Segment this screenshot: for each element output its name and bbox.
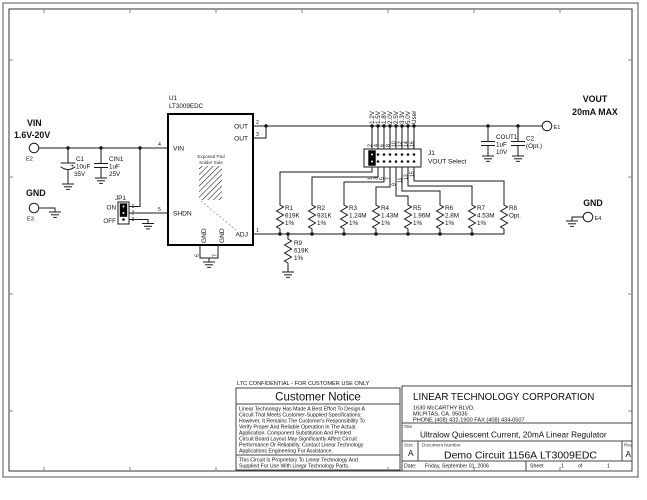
j1-option-user: User [411,111,418,124]
c1-value: 10uF [76,164,91,171]
terminal-e4 [583,212,593,222]
r3-value: 1.24M [349,213,367,220]
ground-symbol [142,220,154,229]
r8-value: Opt. [509,213,521,220]
r9-ref: R9 [294,240,303,247]
u1-pin-out1: OUT [234,124,248,131]
u1-pin-out2: OUT [234,136,248,143]
r4-value: 1.43M [381,213,399,220]
gnd-right-label: GND [583,198,603,208]
u1-num-out2: 3 [256,132,259,138]
u1-pin-vin: VIN [173,146,184,153]
sheet-of-label: of [578,464,583,470]
r2-tol: 1% [317,220,327,227]
pad-tie-dashed-line [201,201,236,230]
cin1-voltage: 25V [109,171,121,178]
resistor-bank: R1 619K 1% R2 931K 1% R3 1.24M 1% R4 1.4… [253,200,521,277]
size-label: Size [404,443,413,448]
r1-tol: 1% [285,220,295,227]
u1-num-vin: 4 [158,142,161,148]
doc-title: Ultralow Quiescent Current, 20mA Linear … [420,431,607,440]
r6-ref: R6 [445,205,454,212]
notice-footer-line: Supplied For Use With Linear Technology … [239,464,349,470]
u1-num-out1: 2 [256,120,259,126]
capacitor-c2: C2 (Opt.) [511,124,542,161]
ground-symbol [62,180,74,189]
date-label: Date: [404,464,416,470]
r3-ref: R3 [349,205,358,212]
capacitor-c1: C1 + 10uF 35V [61,148,91,189]
cin1-ref: CIN1 [109,156,124,163]
j1-shunt [368,150,375,165]
r7-ref: R7 [477,205,486,212]
schematic-sheet: VIN 1.6V-20V E2 C1 + 10uF 35V CIN1 1uF 2… [0,0,647,500]
doc-part-value: LT3009EDC [540,450,597,462]
r4-ref: R4 [381,205,390,212]
jp1-on-label: ON [107,205,117,212]
u1-ref: U1 [169,95,178,102]
vout-max-label: 20mA MAX [572,107,618,117]
header-j1: 1.2V 1.5V 1.8V 2.0V 2.5V 3.3V 5.0V User … [280,110,504,200]
gnd-left-label: GND [26,188,46,198]
sheet-number: 1 [561,464,564,470]
cout1-value: 1uF [496,142,507,149]
resistor-r3: R3 1.24M 1% [341,200,367,234]
r8-ref: R8 [509,205,518,212]
r7-value: 4.53M [477,213,495,220]
j1-pin7-number: 7 [386,177,392,180]
notice-line: Applications Engineering For Assistance. [239,449,333,455]
r5-ref: R5 [413,205,422,212]
title-block: LINEAR TECHNOLOGY CORPORATION 1630 McCAR… [402,386,633,471]
resistor-r5: R5 1.96M 1% [405,200,431,234]
ground-symbol [566,217,578,226]
r5-tol: 1% [413,220,423,227]
ground-symbol [482,152,494,161]
vout-label: VOUT [583,94,608,104]
r7-tol: 1% [477,220,487,227]
u1-pin-shdn: SHDN [173,211,192,218]
u1-num-shdn: 5 [158,207,161,213]
sheet-label: Sheet [530,464,544,470]
date-value: Friday, September 01, 2006 [425,464,489,470]
terminal-e4-label: E4 [595,216,602,222]
sheet-total: 1 [607,464,610,470]
ground-symbol [95,174,107,183]
c2-ref: C2 [526,136,535,143]
ground-symbol [203,258,215,267]
u1-pin-gnd1: GND [201,228,208,243]
r2-ref: R2 [317,205,326,212]
vin-label: VIN [27,118,42,128]
c1-voltage: 35V [74,171,86,178]
j1-name: VOUT Select [428,159,467,166]
title-label: Title [404,424,413,429]
u1-pin-gnd2: GND [219,228,226,243]
cin1-value: 1uF [109,164,120,171]
r1-ref: R1 [285,205,294,212]
r9-value: 619K [294,248,310,255]
terminal-e3 [29,203,39,213]
ground-symbol [512,152,524,161]
resistor-r7: R7 4.53M 1% [469,200,495,234]
terminal-e1 [542,121,552,131]
output-rail: E1 VOUT 20mA MAX [253,94,618,138]
j1-pin16-number: 16 [410,141,416,147]
u1-pad-line2: Solder Side [199,160,223,165]
u1-num-adj: 1 [256,228,259,234]
r6-value: 2.8M [445,213,459,220]
ground-symbol [49,208,61,217]
ic-u1: U1 LT3009EDC VIN SHDN OUT OUT ADJ GND GN… [158,95,259,267]
company-name: LINEAR TECHNOLOGY CORPORATION [413,392,594,403]
terminal-e2 [29,143,39,153]
gnd-right-section: GND E4 [566,198,603,226]
doc-number-label: Document Number [422,443,461,448]
c1-plus: + [71,163,75,170]
c1-ref: C1 [76,156,85,163]
terminal-e2-label: E2 [26,157,33,163]
r5-value: 1.96M [413,213,431,220]
terminal-e3-label: E3 [27,217,34,223]
j1-pin15-number: 15 [410,171,416,177]
u1-pad-line1: Exposed Pad [197,154,225,159]
cout1-voltage: 10V [496,149,508,156]
j1-pins [371,153,416,163]
rev-label: Rev [624,443,633,448]
j1-ref: J1 [428,150,435,157]
resistor-r9: R9 619K 1% [282,234,310,277]
doc-number-value: Demo Circuit 1156A [444,450,537,462]
r4-tol: 1% [381,220,391,227]
jp1-shunt [120,203,127,216]
gnd-left-section: GND E3 [26,188,61,223]
u1-exposed-pad [199,166,222,200]
size-value: A [408,449,414,458]
r2-value: 931K [317,213,333,220]
capacitor-cin1: CIN1 1uF 25V [94,148,124,183]
resistor-r4: R4 1.43M 1% [373,200,399,234]
vin-range-label: 1.6V-20V [14,130,50,140]
terminal-e1-label: E1 [554,125,561,131]
rev-value: A [626,450,632,459]
ground-symbol [282,268,294,277]
r1-value: 619K [285,213,301,220]
u1-part: LT3009EDC [169,103,204,110]
resistor-r6: R6 2.8M 1% [437,200,460,234]
resistor-r2: R2 931K 1% [309,200,333,234]
confidential-label: LTC CONFIDENTIAL - FOR CUSTOMER USE ONLY [237,381,369,387]
jp1-ref: JP1 [115,195,126,202]
c2-value: (Opt.) [526,143,542,150]
r6-tol: 1% [445,220,455,227]
jp1-off-label: OFF [103,218,116,225]
r3-tol: 1% [349,220,359,227]
resistor-r1: R1 619K 1% [277,200,301,234]
customer-notice: LTC CONFIDENTIAL - FOR CUSTOMER USE ONLY… [236,381,400,470]
cout1-ref: COUT1 [496,134,518,141]
vin-section: VIN 1.6V-20V E2 C1 + 10uF 35V CIN1 1uF 2… [14,118,168,229]
u1-pin-adj: ADJ [236,232,248,239]
r9-tol: 1% [294,255,304,262]
resistor-r8: R8 Opt. [501,200,522,234]
customer-notice-title: Customer Notice [275,392,361,404]
